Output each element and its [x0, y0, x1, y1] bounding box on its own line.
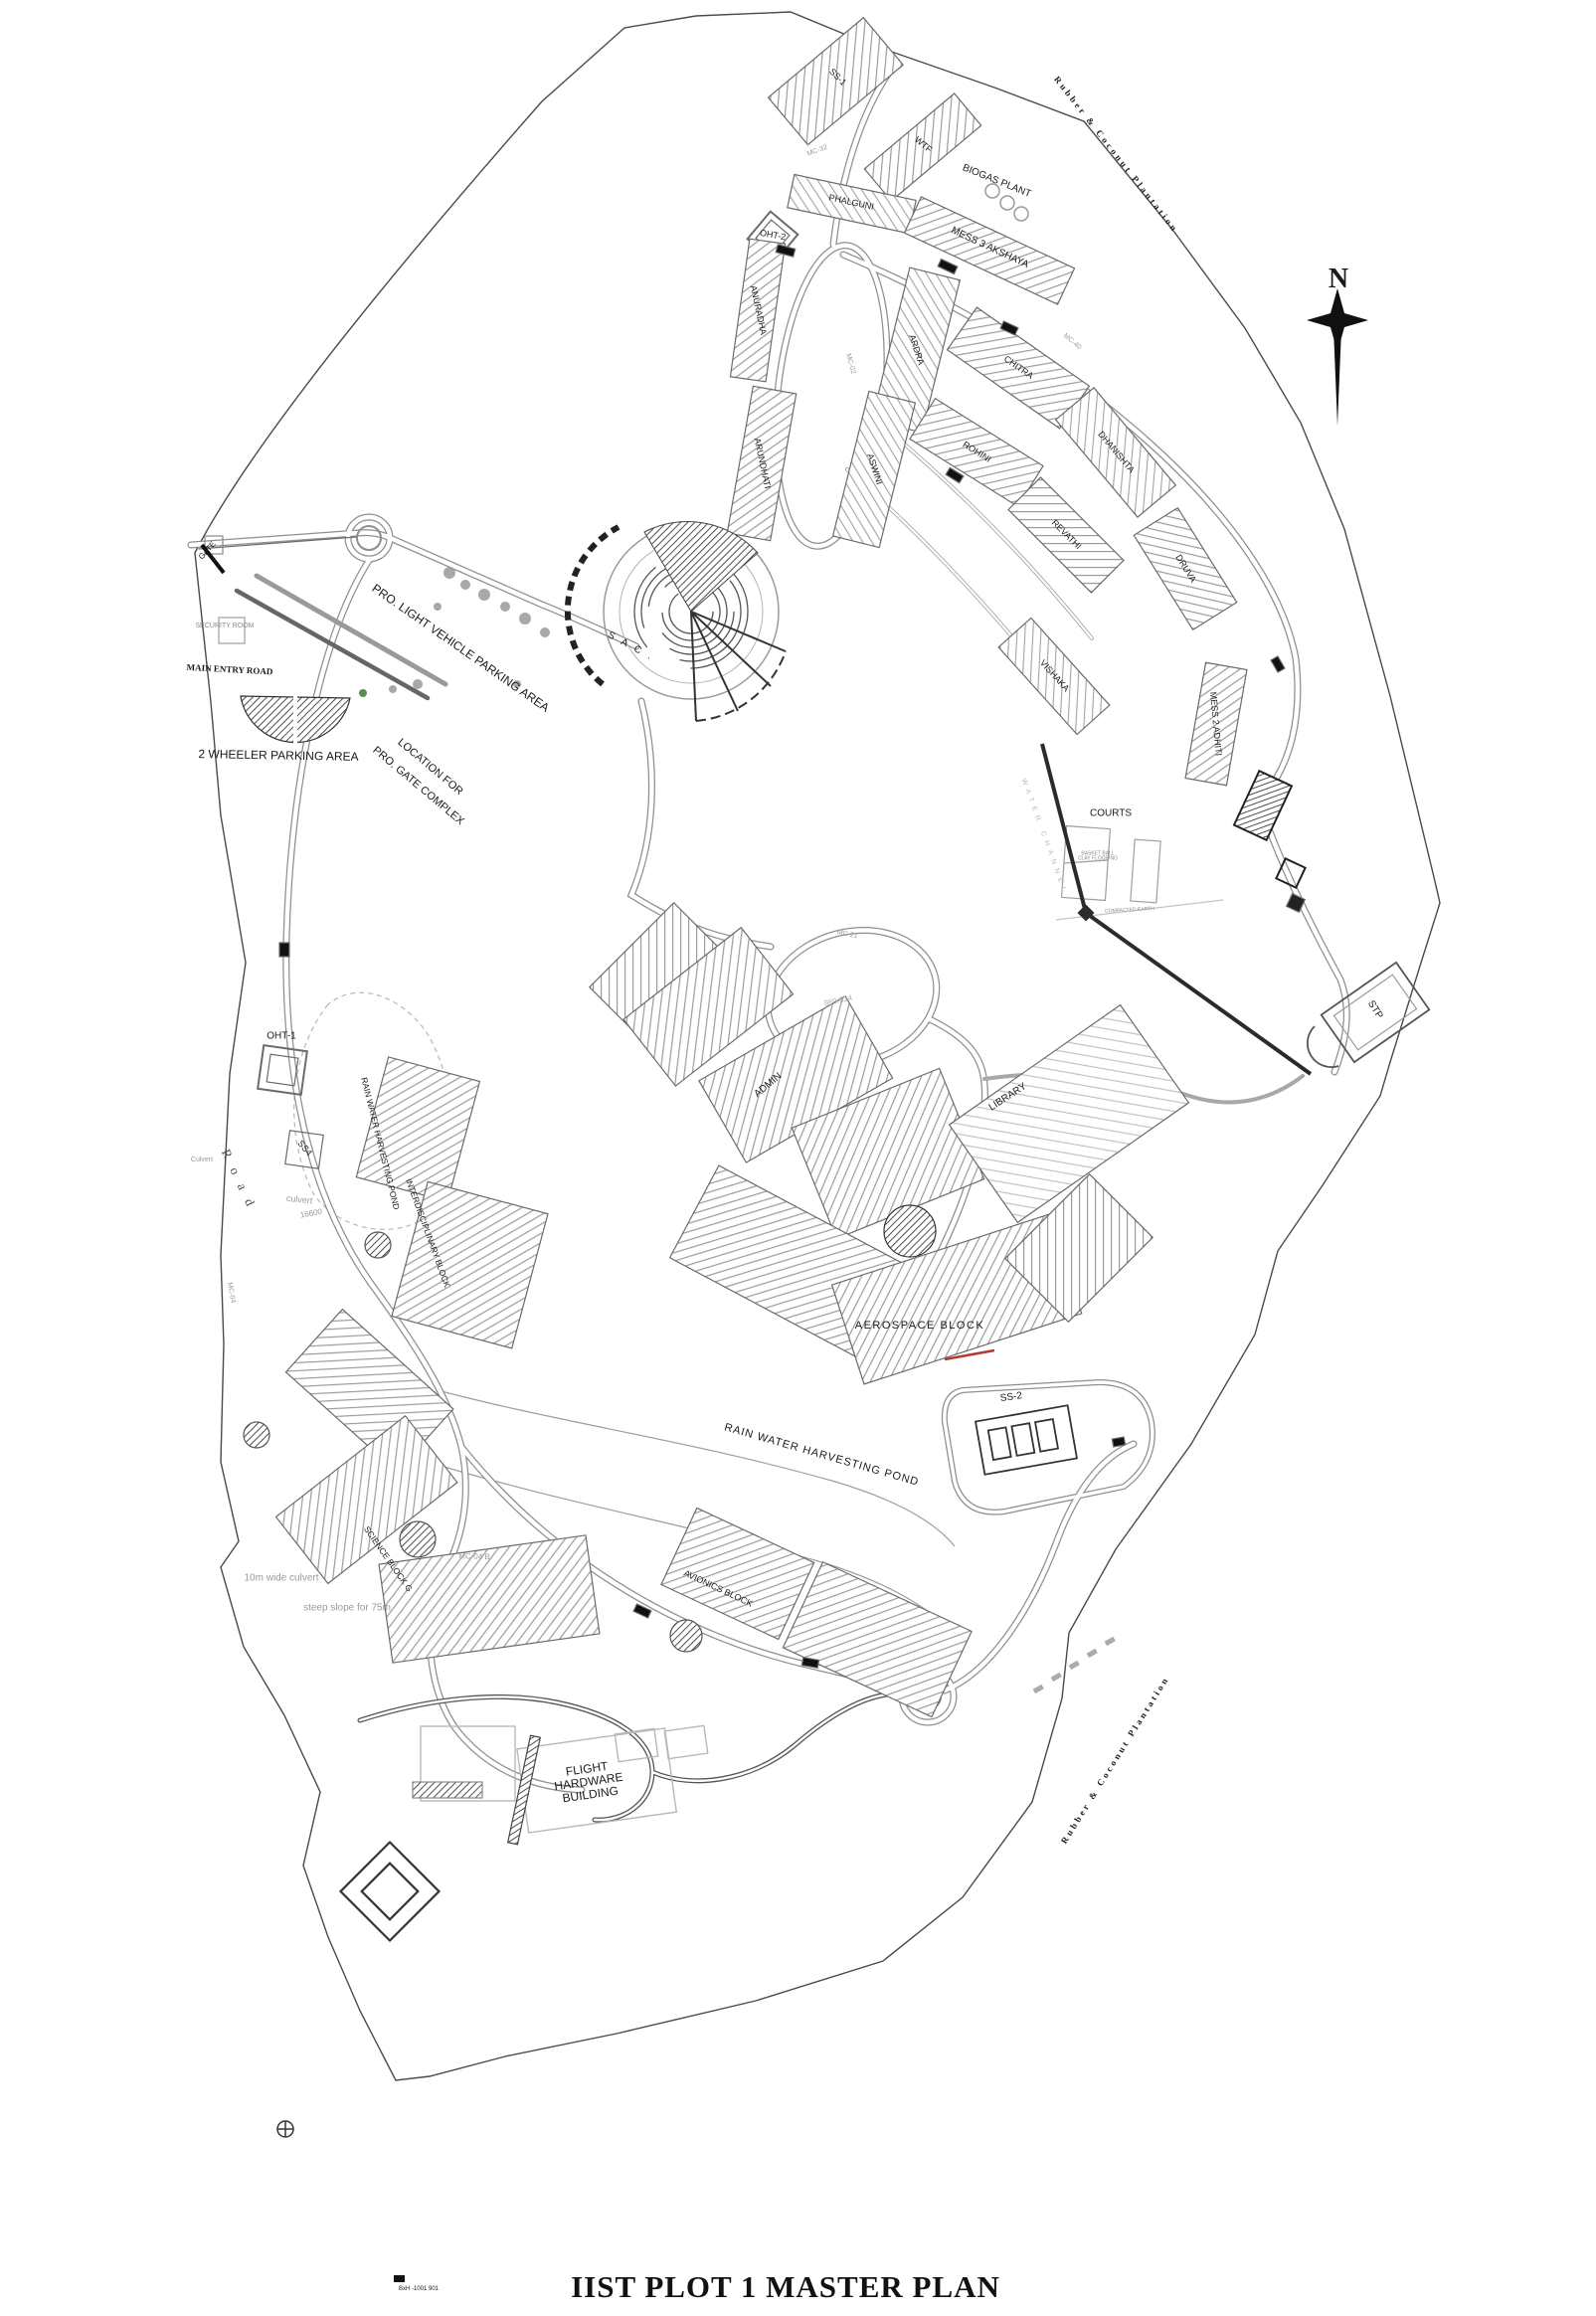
buildings-layer: [202, 18, 1429, 1941]
north-arrow-icon: [1307, 288, 1368, 426]
master-plan-canvas: Rubber & Coconut PlantationRubber & Coco…: [0, 0, 1596, 2316]
legend-swatch: [394, 2275, 405, 2282]
sac-amphitheatre: [568, 522, 786, 721]
site-plan-drawing: [0, 0, 1596, 2316]
fence-dashes: [1033, 1637, 1116, 1693]
survey-marker-icon: [277, 2121, 293, 2137]
page-title: IIST PLOT 1 MASTER PLAN: [571, 2269, 1000, 2305]
